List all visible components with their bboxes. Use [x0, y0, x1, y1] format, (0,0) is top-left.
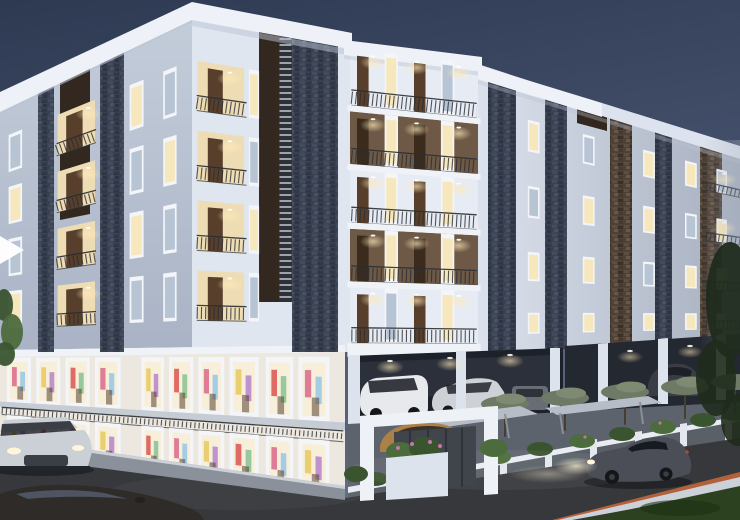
shop-display	[236, 369, 242, 395]
light-glow	[360, 118, 386, 132]
light-glow	[75, 287, 101, 301]
shop-door	[47, 388, 53, 402]
taillight	[685, 450, 689, 454]
light-glow	[446, 66, 472, 80]
window-glass	[529, 189, 538, 217]
light-glow	[404, 61, 430, 75]
stone-pilaster	[545, 92, 567, 351]
flower	[410, 442, 414, 446]
window-glass	[165, 71, 175, 116]
window-glass	[584, 259, 593, 282]
bumper-shadow	[0, 466, 90, 471]
shop-door	[312, 398, 319, 417]
light-glow	[376, 360, 404, 374]
shrub	[569, 434, 595, 448]
shrub	[344, 466, 368, 482]
shop-door	[242, 395, 249, 413]
hubcap	[663, 471, 669, 477]
corner-stone-column	[292, 36, 338, 352]
light-glow	[75, 167, 101, 181]
grille	[24, 455, 68, 466]
window-glass	[386, 178, 396, 222]
light-glow	[217, 72, 243, 86]
light-glow	[446, 239, 472, 253]
listing-photo	[0, 0, 740, 520]
window-glass	[131, 215, 141, 256]
window-glass	[250, 277, 258, 318]
shop-display	[100, 368, 105, 390]
stone-pilaster	[100, 50, 124, 352]
window-glass	[131, 280, 141, 320]
window-glass	[645, 152, 654, 177]
light-glow	[617, 351, 643, 363]
shrub	[609, 427, 635, 441]
window-glass	[386, 235, 396, 279]
shop-display	[271, 447, 277, 470]
shop-display	[146, 436, 150, 456]
shop-door	[210, 394, 216, 411]
window-glass	[386, 293, 396, 339]
shop-display	[236, 444, 242, 466]
shop-display	[305, 450, 311, 474]
shop-display	[174, 438, 179, 459]
window-glass	[687, 215, 696, 237]
light-glow	[360, 235, 386, 249]
window-glass	[645, 208, 654, 232]
shop-door	[278, 396, 285, 414]
flower	[438, 444, 442, 448]
light-glow	[217, 140, 243, 154]
window-glass	[10, 134, 20, 169]
shop-door	[179, 393, 185, 409]
portal-pillar	[360, 415, 374, 501]
window-glass	[131, 85, 141, 128]
headlight	[72, 445, 84, 451]
stone-pilaster	[655, 125, 672, 345]
brown-stone-pilaster	[610, 111, 632, 347]
shop-display	[305, 370, 311, 398]
window-glass	[645, 264, 654, 285]
window-glass	[165, 140, 175, 184]
window-glass	[10, 187, 20, 221]
shop-display	[41, 367, 46, 387]
window-glass	[131, 150, 141, 192]
shop-display	[71, 368, 76, 389]
light-glow	[404, 122, 430, 136]
stone-pilaster	[488, 74, 516, 355]
shrub	[480, 439, 508, 457]
window-glass	[386, 58, 396, 106]
column	[598, 343, 608, 408]
window-glass	[250, 209, 258, 250]
shop-display	[100, 431, 105, 450]
shrub	[650, 420, 676, 434]
light-glow	[360, 55, 386, 69]
light-glow	[75, 107, 101, 121]
shop-door	[106, 390, 112, 405]
light-glow	[217, 278, 243, 292]
shop-door	[17, 386, 23, 399]
tree-canopy	[496, 394, 526, 405]
window-glass	[250, 142, 258, 183]
planter-box	[386, 452, 448, 500]
window-glass	[165, 208, 175, 251]
shop-door	[76, 389, 82, 403]
window-glass	[584, 137, 593, 164]
window-glass	[645, 315, 654, 330]
window-glass	[584, 198, 593, 224]
tree-canopy	[616, 382, 646, 393]
window-glass	[529, 255, 538, 280]
headlight-beam	[508, 465, 588, 483]
hubcap	[609, 474, 615, 480]
window-glass	[165, 277, 175, 319]
column	[348, 355, 360, 424]
light-glow	[404, 237, 430, 251]
window-glass	[529, 315, 538, 333]
stone-pilaster	[38, 83, 54, 352]
light-glow	[496, 354, 524, 368]
light-glow	[404, 294, 430, 308]
light-glow	[75, 227, 101, 241]
light-glow	[436, 357, 464, 371]
headlight	[7, 448, 21, 455]
flower	[583, 435, 586, 438]
window-glass	[584, 315, 593, 332]
shop-display	[174, 369, 179, 393]
accent-panel	[259, 29, 279, 302]
light-glow	[360, 293, 386, 307]
light-glow	[404, 180, 430, 194]
light-glow	[446, 127, 472, 141]
column	[658, 338, 668, 404]
flower	[396, 446, 400, 450]
light-glow	[217, 209, 243, 223]
shop-display	[146, 368, 150, 391]
side-mirror	[135, 497, 145, 503]
shop-display	[12, 367, 17, 386]
flower	[658, 421, 661, 424]
apartment-rendering	[0, 0, 740, 520]
window-glass	[529, 123, 538, 152]
window-glass	[687, 315, 696, 329]
window-glass	[250, 74, 258, 116]
window-glass	[386, 120, 396, 164]
window-glass	[687, 163, 696, 186]
light-glow	[360, 176, 386, 190]
flower	[428, 440, 432, 444]
tree-canopy	[556, 388, 586, 399]
grass-shadow	[640, 500, 720, 516]
light-glow	[446, 295, 472, 309]
window-glass	[687, 267, 696, 287]
shop-door	[151, 392, 156, 408]
shop-display	[271, 370, 277, 397]
light-glow	[446, 183, 472, 197]
light-glow	[677, 346, 703, 358]
shop-display	[204, 369, 209, 394]
shop-display	[204, 441, 209, 462]
